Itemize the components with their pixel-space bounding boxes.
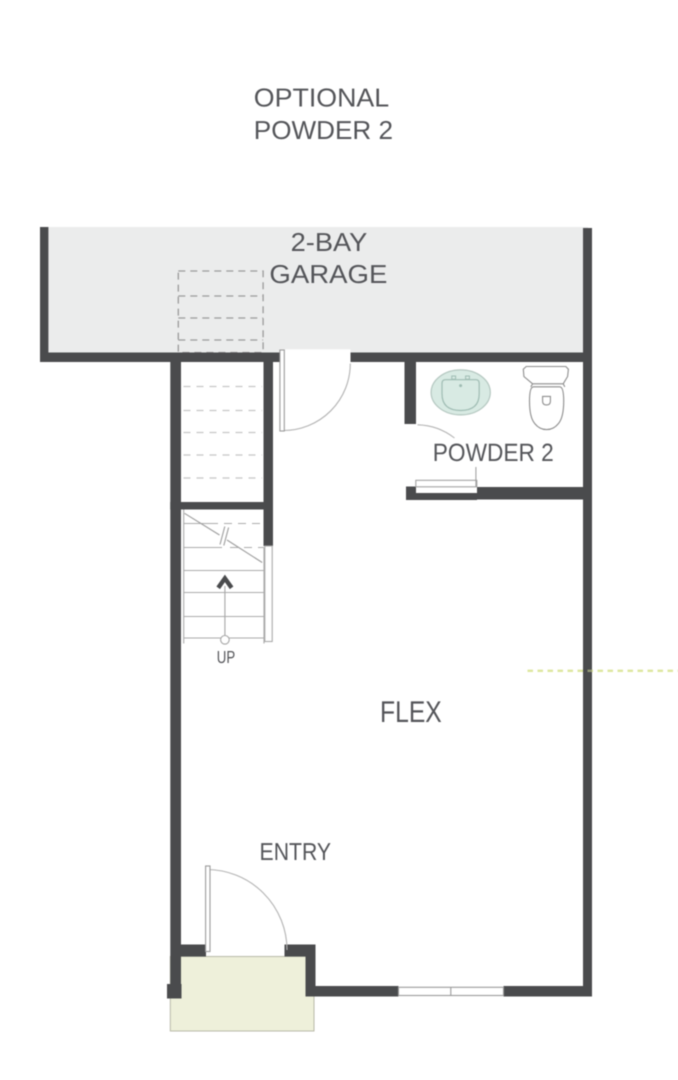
svg-text:ENTRY: ENTRY (260, 839, 332, 866)
svg-text:FLEX: FLEX (380, 696, 442, 729)
svg-text:UP: UP (217, 647, 235, 667)
svg-text:GARAGE: GARAGE (269, 259, 387, 289)
svg-text:POWDER 2: POWDER 2 (433, 439, 554, 467)
svg-text:2-BAY: 2-BAY (291, 227, 368, 257)
svg-text:OPTIONAL: OPTIONAL (254, 83, 389, 113)
svg-text:POWDER 2: POWDER 2 (254, 115, 393, 145)
